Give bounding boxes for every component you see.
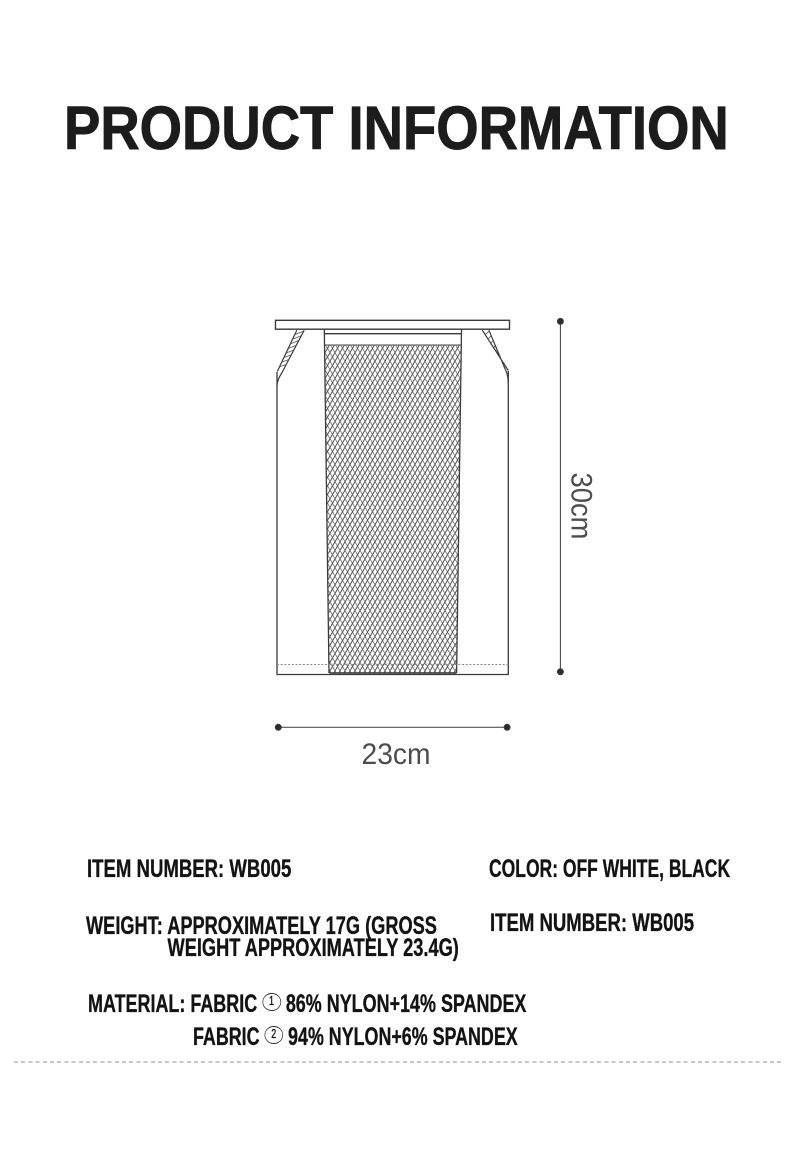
svg-text:23cm: 23cm: [362, 738, 431, 771]
svg-text:30cm: 30cm: [565, 473, 598, 540]
